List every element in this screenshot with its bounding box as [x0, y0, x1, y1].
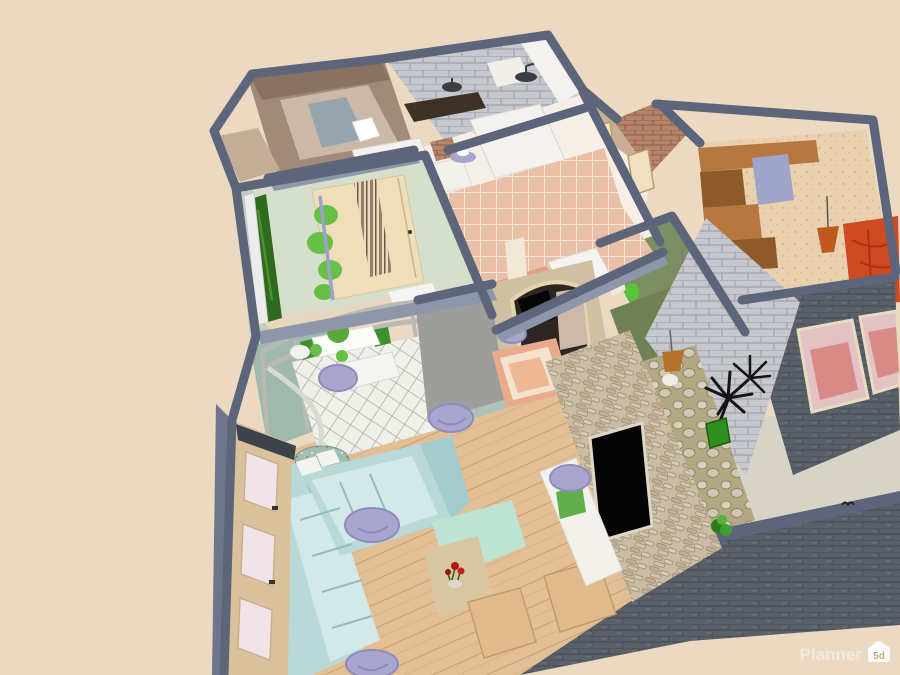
- floorplan-render: Planner 5d: [0, 0, 900, 675]
- bedroom-door: [752, 154, 794, 205]
- ottoman-1: [345, 508, 399, 542]
- kitchen-chair-2: [336, 350, 348, 362]
- shower-head-1: [442, 82, 462, 92]
- ottoman-2: [429, 404, 473, 432]
- decor-leaf-2: [307, 232, 333, 254]
- kitchen-chair-white: [290, 345, 310, 359]
- bedroom-shelf-1: [700, 169, 746, 208]
- watermark-brand: Planner: [800, 645, 863, 664]
- cabinet-handle-1: [272, 506, 278, 510]
- kitchen-ottoman: [319, 365, 357, 391]
- floorplan-svg: Planner 5d: [0, 0, 900, 675]
- cabinet-handle-2: [269, 580, 275, 584]
- vase: [448, 580, 462, 588]
- plant-pot: [706, 418, 730, 448]
- bush-2: [720, 524, 732, 536]
- cabinet-panel-2: [241, 524, 275, 586]
- wardrobe-knob: [408, 230, 412, 234]
- flower-2: [458, 568, 465, 575]
- pendant-green: [625, 283, 639, 301]
- kitchen-chair-1: [310, 344, 322, 356]
- cabinet-panel-3: [238, 598, 272, 660]
- flower-3: [445, 569, 451, 575]
- pendant-stem: [827, 196, 828, 228]
- shower-head-2: [515, 72, 537, 82]
- badge-label: 5d: [873, 651, 885, 662]
- decor-leaf-1: [314, 205, 338, 225]
- bush-3: [717, 515, 727, 525]
- watermark: Planner 5d: [800, 641, 890, 664]
- flower-1: [451, 562, 459, 570]
- white-ball: [662, 374, 678, 386]
- ottoman-3: [346, 650, 398, 675]
- console-stool: [550, 465, 590, 491]
